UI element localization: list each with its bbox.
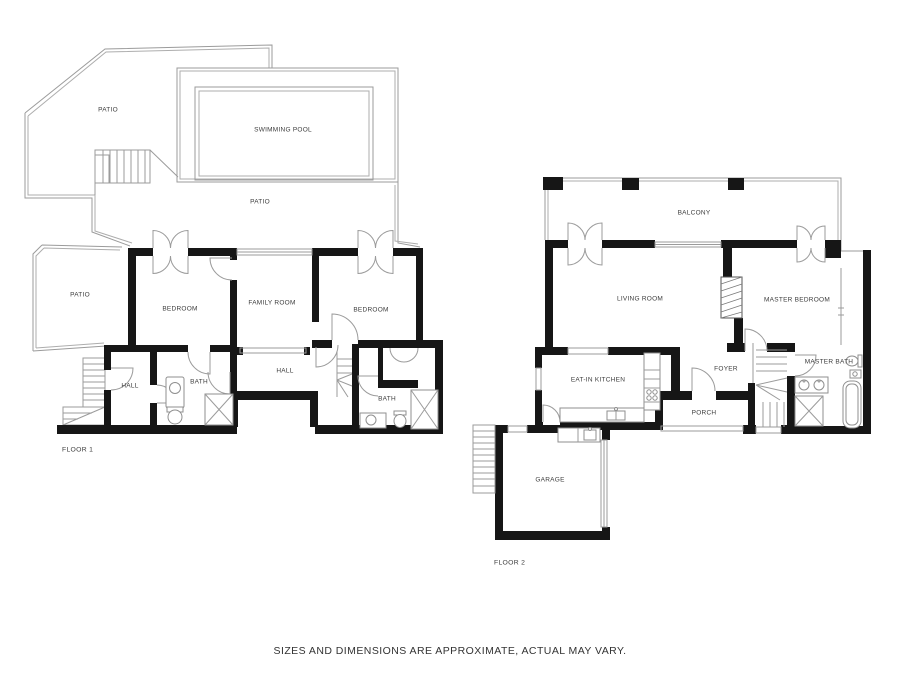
pool-patio-outline [25, 45, 420, 247]
kitchen-fixtures [560, 353, 660, 422]
disclaimer-text: SIZES AND DIMENSIONS ARE APPROXIMATE, AC… [273, 645, 626, 657]
room-label-bath-small: BATH [190, 379, 208, 386]
room-label-porch: PORCH [692, 410, 717, 417]
master-bath-fixtures [795, 355, 862, 428]
room-label-hall-small: HALL [121, 383, 138, 390]
room-label-patio-main: PATIO [250, 199, 270, 206]
floor-plan-drawing [0, 0, 900, 675]
room-label-family-room: FAMILY ROOM [248, 300, 295, 307]
floor1-bath-right-fixtures [360, 390, 438, 429]
floor1-walls [57, 248, 443, 434]
floor2-stairs-winder [753, 343, 787, 427]
room-label-bedroom-right: BEDROOM [353, 307, 388, 314]
room-label-eat-in-kitchen: EAT-IN KITCHEN [571, 377, 625, 384]
room-label-patio-side: PATIO [70, 292, 90, 299]
floor1-title: FLOOR 1 [62, 447, 93, 454]
room-label-swimming-pool: SWIMMING POOL [254, 127, 312, 134]
exterior-stairs-floor1 [63, 358, 105, 425]
room-label-master-bath: MASTER BATH [805, 359, 854, 366]
fireplace [721, 277, 742, 318]
balcony-pillars [543, 177, 744, 190]
patio-stairs [95, 150, 178, 195]
room-label-hall-main: HALL [276, 368, 293, 375]
room-label-master-bedroom: MASTER BEDROOM [764, 297, 830, 304]
floor-plan-canvas: PATIO SWIMMING POOL PATIO PATIO BEDROOM … [0, 0, 900, 675]
room-label-balcony: BALCONY [678, 210, 711, 217]
floor2-title: FLOOR 2 [494, 560, 525, 567]
room-label-bath-main: BATH [378, 396, 396, 403]
exterior-stairs-floor2 [473, 425, 495, 493]
room-label-living-room: LIVING ROOM [617, 296, 663, 303]
floor1-doors [111, 231, 418, 404]
room-label-foyer: FOYER [714, 366, 738, 373]
room-label-patio-upper: PATIO [98, 107, 118, 114]
room-label-bedroom-left: BEDROOM [162, 306, 197, 313]
room-label-garage: GARAGE [535, 477, 564, 484]
garage-sink [558, 428, 600, 443]
floor1-stairs-winder [337, 352, 352, 397]
